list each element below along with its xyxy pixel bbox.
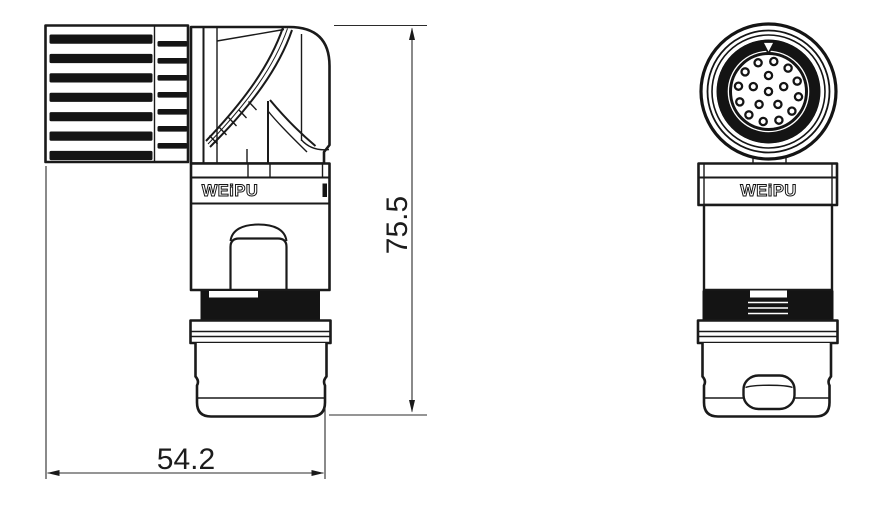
pin [750, 83, 757, 90]
dim-height-label: 75.5 [381, 196, 414, 254]
pin [765, 72, 772, 79]
knurl-rib [158, 92, 188, 98]
pin [794, 78, 801, 85]
dim-width-label: 54.2 [157, 443, 215, 476]
pin [755, 59, 762, 66]
dimension-height: 75.5 [329, 26, 427, 416]
cable-dome [744, 376, 795, 410]
arrow-left [47, 470, 60, 476]
knurl-rib [50, 35, 153, 44]
arrow-up [409, 28, 415, 41]
label-tick [323, 184, 328, 198]
elbow-housing [191, 27, 330, 164]
knurl-rib [50, 151, 153, 160]
pin [788, 108, 795, 115]
front-body-rect [704, 205, 832, 290]
knurl-rib [50, 54, 153, 63]
pin [745, 111, 752, 118]
pin [765, 88, 772, 95]
arrow-right [312, 470, 325, 476]
arrow-down [409, 400, 415, 413]
side-body: WEiPU [191, 164, 330, 291]
knurl-rib [50, 93, 153, 102]
weipu-logo-side: WEiPU [202, 182, 259, 200]
front-gland [698, 291, 838, 417]
knurl-rib [158, 126, 188, 132]
pin [736, 98, 743, 105]
knurl-rib [50, 132, 153, 141]
front-body: WEiPU [699, 155, 838, 291]
pin [770, 58, 777, 65]
mating-face [701, 24, 836, 159]
pin [756, 101, 763, 108]
knurl-rib [50, 112, 153, 121]
front-view: WEiPU [698, 24, 838, 417]
front-thread-notch [750, 291, 787, 298]
weipu-logo-front: WEiPU [740, 182, 797, 200]
pin [774, 101, 781, 108]
pin [742, 68, 749, 75]
knurl-rib [158, 143, 188, 149]
elbow-outline [191, 27, 330, 164]
pin [735, 83, 742, 90]
knurl-rib [158, 41, 188, 47]
side-view: WEiPU 54.2 [46, 26, 428, 480]
knurl-rib [50, 73, 153, 82]
technical-drawing: WEiPU 54.2 [0, 0, 880, 506]
pin [785, 65, 792, 72]
pin [795, 93, 802, 100]
pin [780, 83, 787, 90]
thread-highlight [209, 291, 258, 298]
gland-cap [196, 343, 327, 417]
knurl-rib [158, 109, 188, 115]
pin [775, 117, 782, 124]
knurl-rib [158, 75, 188, 81]
knurl-rib [158, 58, 188, 64]
pin [760, 118, 767, 125]
coupling-nut [46, 26, 189, 163]
side-gland [191, 291, 331, 417]
